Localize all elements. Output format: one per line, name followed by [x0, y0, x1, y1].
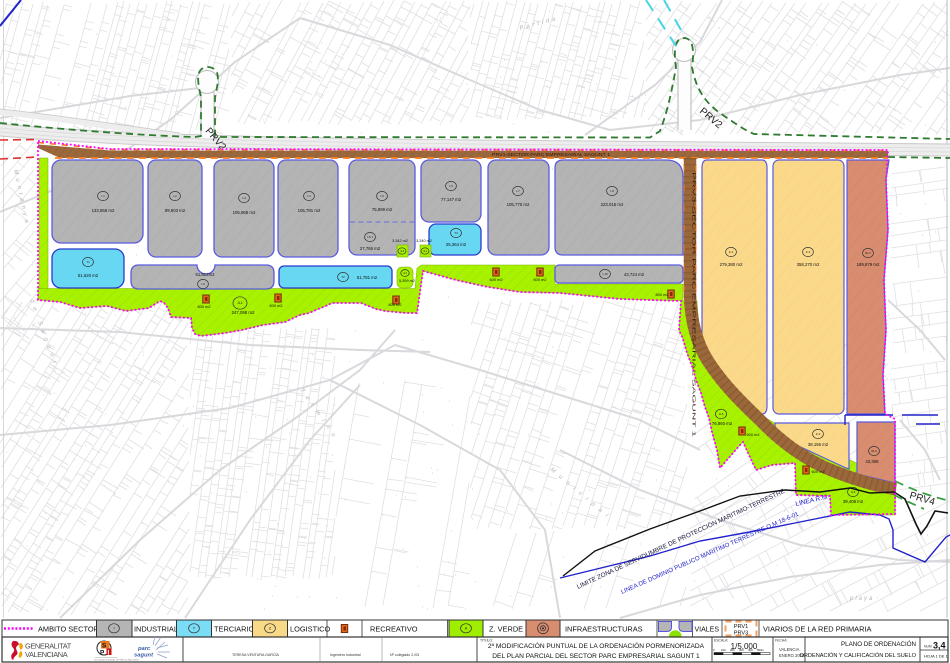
svg-text:600 m2: 600 m2	[270, 303, 283, 308]
svg-text:600 m2: 600 m2	[389, 302, 402, 307]
svg-text:42,308: 42,308	[865, 459, 879, 464]
svg-text:I-3: I-3	[242, 196, 246, 200]
svg-text:27,765 m2: 27,765 m2	[360, 246, 381, 251]
svg-text:600 m2: 600 m2	[812, 469, 825, 474]
svg-text:I: I	[108, 650, 110, 657]
svg-text:S: S	[102, 643, 107, 650]
svg-text:I-7: I-7	[516, 189, 520, 193]
svg-text:I-8: I-8	[610, 189, 614, 193]
svg-text:600 m2: 600 m2	[747, 432, 760, 437]
svg-text:JL3: JL3	[400, 250, 405, 253]
svg-text:5,399 m2: 5,399 m2	[399, 279, 415, 283]
svg-text:PRV1: PRV1	[734, 624, 749, 630]
svg-text:I-9: I-9	[201, 282, 205, 286]
svg-text:VIARIOS DE LA RED PRIMARIA: VIARIOS DE LA RED PRIMARIA	[763, 624, 871, 633]
svg-text:LOGISTICO: LOGISTICO	[290, 624, 330, 633]
svg-text:43,724 m2: 43,724 m2	[624, 272, 645, 277]
svg-text:200: 200	[730, 648, 735, 652]
svg-text:189,879 m2: 189,879 m2	[857, 262, 880, 267]
svg-text:600 m2: 600 m2	[656, 292, 669, 297]
svg-text:75,899 m2: 75,899 m2	[372, 207, 393, 212]
svg-text:INFRAESTRUCTURAS: INFRAESTRUCTURAS	[565, 624, 643, 633]
svg-text:89,803 m2: 89,803 m2	[165, 208, 186, 213]
svg-text:279,380 m2: 279,380 m2	[720, 262, 743, 267]
svg-text:600 m2: 600 m2	[198, 304, 211, 309]
svg-text:parc: parc	[137, 646, 151, 652]
svg-text:Z-3: Z-3	[816, 432, 821, 436]
svg-text:JL5: JL5	[719, 412, 724, 416]
svg-text:Z. VERDE: Z. VERDE	[489, 624, 523, 633]
svg-text:T2: T2	[341, 275, 345, 279]
svg-text:AMBITO SECTOR: AMBITO SECTOR	[38, 624, 99, 633]
svg-text:1/5.000: 1/5.000	[731, 642, 758, 651]
svg-text:133,868 m2: 133,868 m2	[92, 208, 115, 213]
svg-text:VIALES: VIALES	[695, 626, 720, 633]
svg-text:RECREATIVO: RECREATIVO	[370, 624, 418, 633]
svg-text:NUM: NUM	[924, 645, 932, 649]
svg-text:600 m2: 600 m2	[534, 277, 547, 282]
svg-text:playa: playa	[849, 596, 874, 602]
svg-text:ORDENACIÓN Y CALIFICACIÓN DEL: ORDENACIÓN Y CALIFICACIÓN DEL SUELO	[800, 652, 917, 659]
svg-text:JL6: JL6	[851, 490, 856, 494]
svg-text:T1: T1	[86, 260, 90, 264]
svg-text:Nº colegiado 2,/03: Nº colegiado 2,/03	[390, 653, 419, 657]
svg-text:TERESA VENTURA GARCÍA: TERESA VENTURA GARCÍA	[232, 653, 280, 657]
svg-text:PRV1-SECTOR PARC EMPRESARIAL S: PRV1-SECTOR PARC EMPRESARIAL SAGUNT 1	[492, 152, 611, 157]
svg-text:39,408 m2: 39,408 m2	[843, 499, 864, 504]
svg-text:I-1: I-1	[101, 194, 105, 198]
svg-text:I-4: I-4	[307, 194, 311, 198]
svg-text:PRV3: PRV3	[734, 631, 749, 637]
svg-text:400: 400	[748, 648, 753, 652]
svg-text:ID-1: ID-1	[865, 251, 871, 255]
svg-text:247,098 m2: 247,098 m2	[232, 310, 255, 315]
svg-text:I: I	[113, 625, 114, 630]
svg-text:JL1: JL1	[237, 301, 243, 305]
svg-text:P: P	[100, 650, 105, 657]
svg-text:600 m2: 600 m2	[490, 277, 503, 282]
svg-text:358,270 m2: 358,270 m2	[797, 262, 820, 267]
svg-text:Z-2: Z-2	[806, 250, 811, 254]
svg-text:300: 300	[739, 648, 744, 652]
svg-text:HOJA 1 DE 1: HOJA 1 DE 1	[924, 654, 949, 659]
svg-text:FECHA:: FECHA:	[775, 639, 787, 643]
svg-text:PRV3-SECTOR PARC EMPRESARIAL S: PRV3-SECTOR PARC EMPRESARIAL SAGUNT 1	[692, 172, 697, 438]
svg-text:61,812m2: 61,812m2	[195, 272, 215, 277]
svg-text:3,342 m2: 3,342 m2	[392, 239, 408, 243]
svg-text:38.156 m2: 38.156 m2	[808, 442, 829, 447]
svg-text:25,364 m2: 25,364 m2	[446, 242, 467, 247]
svg-text:2ª MODIFICACIÓN PUNTUAL DE LA: 2ª MODIFICACIÓN PUNTUAL DE LA ORDENACIÓN…	[488, 641, 705, 650]
svg-text:PLANO DE ORDENACIÓN: PLANO DE ORDENACIÓN	[841, 641, 916, 648]
svg-text:T4: T4	[454, 231, 458, 235]
svg-text:105,770 m2: 105,770 m2	[507, 202, 530, 207]
svg-text:Z-1: Z-1	[729, 250, 734, 254]
svg-text:ID-2: ID-2	[871, 449, 877, 453]
svg-text:3,340 m2: 3,340 m2	[416, 239, 432, 243]
svg-text:77,147 m2: 77,147 m2	[441, 197, 462, 202]
svg-text:100: 100	[721, 648, 726, 652]
svg-text:500m: 500m	[757, 648, 765, 652]
svg-text:I-10: I-10	[602, 272, 608, 276]
svg-text:I-6: I-6	[449, 184, 453, 188]
svg-text:VALENCIANA: VALENCIANA	[25, 650, 68, 659]
svg-text:51,620 m2: 51,620 m2	[78, 273, 99, 278]
svg-text:ESCALA:: ESCALA:	[714, 639, 728, 643]
svg-text:JL2: JL2	[403, 272, 408, 275]
svg-text:A: A	[465, 625, 468, 630]
svg-text:3,4: 3,4	[933, 641, 946, 651]
svg-text:Ingeniero Industrial: Ingeniero Industrial	[330, 653, 361, 657]
svg-text:INDUSTRIAL: INDUSTRIAL	[134, 624, 178, 633]
svg-text:DEL PLAN PARCIAL DEL SECTOR P: DEL PLAN PARCIAL DEL SECTOR PARC EMPRESA…	[492, 653, 700, 660]
svg-text:105,781 m2: 105,781 m2	[298, 208, 321, 213]
svg-text:51,781 m2: 51,781 m2	[357, 275, 378, 280]
svg-text:JL4: JL4	[423, 250, 428, 253]
svg-text:SOCIEDAD ESTATAL DE PARTICIPAC: SOCIEDAD ESTATAL DE PARTICIPACIONES	[94, 659, 140, 662]
svg-text:76,860 m2: 76,860 m2	[712, 421, 733, 426]
svg-text:VALENCIA: VALENCIA	[779, 647, 800, 652]
svg-text:I-5.1: I-5.1	[367, 235, 373, 239]
svg-text:223.015 m2: 223.015 m2	[601, 202, 624, 207]
svg-text:TERCIARIO: TERCIARIO	[214, 624, 254, 633]
svg-text:105,968 m2: 105,968 m2	[233, 210, 256, 215]
svg-text:I-2: I-2	[173, 194, 177, 198]
svg-text:sagunt: sagunt	[134, 653, 154, 659]
svg-text:I-5: I-5	[380, 194, 384, 198]
svg-text:TITULO:: TITULO:	[480, 639, 493, 643]
